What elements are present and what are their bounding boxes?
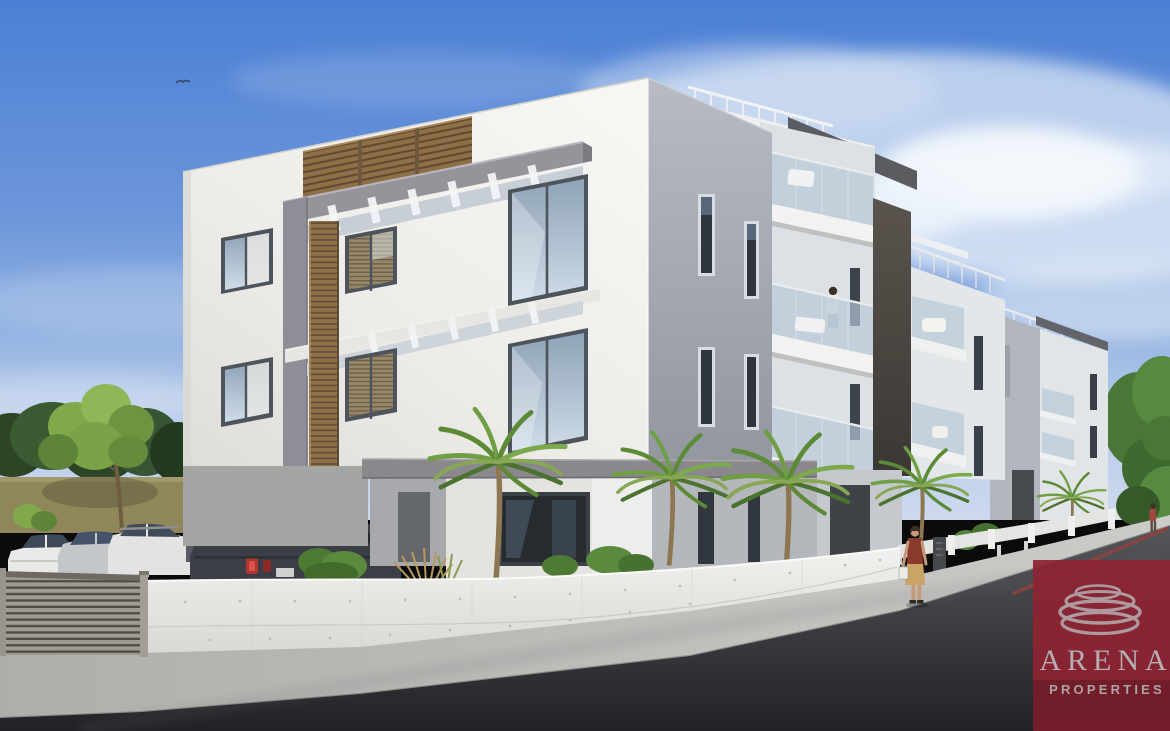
render-canvas: ARENA PROPERTIES [0,0,1170,731]
render-image: ARENA PROPERTIES [0,0,1170,731]
shopping-bag [899,567,908,579]
dark-accent-panel [873,198,911,476]
watermark-brand-text: ARENA [1039,644,1170,677]
arena-properties-watermark: ARENA PROPERTIES [1033,560,1170,731]
wooden-louver-column [309,221,339,473]
watermark-tagline-text: PROPERTIES [1049,682,1165,697]
driveway-gate [0,568,149,657]
